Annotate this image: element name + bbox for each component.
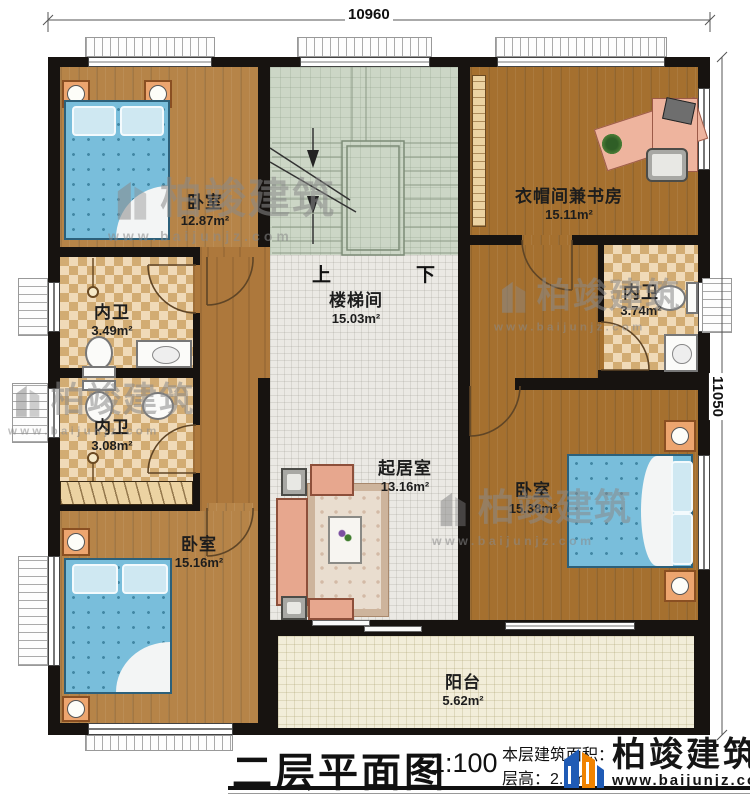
nightstand — [62, 528, 90, 556]
hall-right — [470, 245, 598, 378]
floor-plan-page: 10960 11050 卧室12.87m² 楼梯间15.03m² 上 下 衣帽间… — [0, 0, 750, 799]
plant — [602, 134, 622, 154]
stair-up-label: 上 — [312, 260, 331, 287]
window — [505, 622, 635, 630]
door-gap — [598, 322, 604, 370]
brand-building-icon — [556, 738, 608, 792]
nightstand — [664, 420, 696, 452]
window-ticks — [495, 37, 667, 57]
window — [497, 57, 665, 67]
sliding-door — [312, 620, 370, 626]
wall-stub — [258, 378, 270, 511]
window — [88, 57, 212, 67]
window-ticks — [85, 37, 215, 57]
vanity-sink — [664, 334, 698, 372]
door-gap — [522, 235, 572, 245]
window-ticks — [18, 278, 48, 336]
window-ticks — [18, 556, 48, 666]
label-stairwell: 楼梯间15.03m² — [329, 286, 383, 326]
ceiling-lamp — [87, 452, 99, 464]
armchair — [281, 468, 307, 496]
armchair — [281, 596, 307, 620]
label-balcony: 阳台5.62m² — [442, 668, 483, 708]
label-bedroom-right: 卧室15.38m² — [509, 476, 557, 516]
toilet-tank — [82, 366, 116, 378]
title-underline-thin — [228, 793, 750, 794]
bed — [64, 100, 170, 240]
toilet-tank — [82, 380, 116, 391]
window — [698, 455, 710, 570]
ceiling-lamp — [87, 286, 99, 298]
brand-url: www.baijunjz.com — [612, 772, 750, 789]
study-closet — [472, 75, 486, 227]
window — [48, 556, 60, 666]
window — [300, 57, 430, 67]
room-balcony — [278, 636, 694, 728]
vanity-sink — [136, 340, 192, 368]
window-ticks — [85, 735, 233, 751]
label-living: 起居室13.16m² — [378, 454, 432, 494]
window-ticks — [297, 37, 432, 57]
sofa — [308, 598, 354, 620]
label-study: 衣帽间兼书房15.11m² — [515, 182, 623, 222]
door-gap — [193, 425, 200, 473]
door-gap — [207, 503, 253, 511]
door-gap — [207, 247, 253, 257]
nightstand — [664, 570, 696, 602]
dimension-right: 11050 — [709, 373, 726, 420]
window — [48, 282, 60, 332]
sink — [142, 392, 174, 420]
brand-logo: 柏竣建筑 www.baijunjz.com — [556, 738, 750, 792]
window — [88, 723, 233, 735]
label-bath-left-2: 内卫3.08m² — [91, 413, 132, 453]
dimension-top: 10960 — [345, 6, 393, 23]
label-bath-right: 内卫3.74m² — [620, 278, 661, 318]
desk-chair — [646, 148, 688, 182]
coffee-table — [328, 516, 362, 564]
window-ticks — [12, 383, 48, 443]
sofa — [310, 464, 354, 496]
toilet — [85, 336, 113, 370]
wardrobe-strip — [60, 481, 193, 505]
label-bedroom-top-left: 卧室12.87m² — [181, 188, 229, 228]
door-gap — [193, 265, 200, 313]
plan-scale: 1:100 — [430, 748, 498, 779]
bed — [567, 454, 693, 568]
room-stairwell — [270, 67, 458, 255]
brand-name: 柏竣建筑 — [612, 738, 750, 772]
door-gap — [470, 378, 515, 390]
sofa — [276, 498, 308, 606]
toilet-tank — [686, 282, 698, 314]
stair-down-label: 下 — [416, 260, 435, 287]
label-bedroom-bottom-left: 卧室15.16m² — [175, 530, 223, 570]
sliding-door — [364, 626, 422, 632]
window — [48, 388, 60, 438]
window-ticks — [702, 278, 732, 333]
nightstand — [62, 696, 90, 722]
label-bath-left-1: 内卫3.49m² — [91, 298, 132, 338]
bed — [64, 558, 172, 694]
